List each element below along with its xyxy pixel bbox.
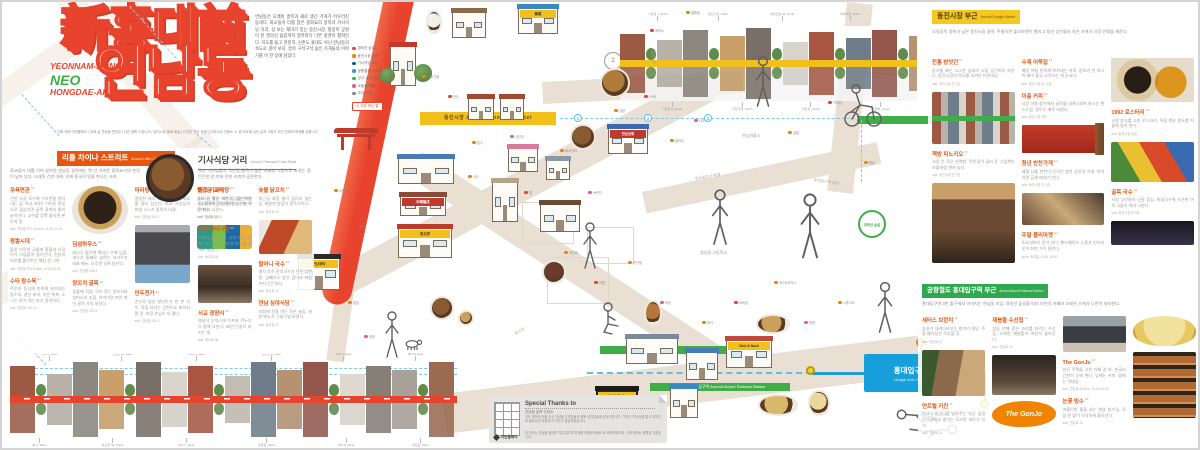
shop-address: add. 연남동 240-12 (10, 305, 65, 310)
map-marker: 펍 (524, 190, 532, 195)
map-marker: 라멘 (594, 280, 605, 285)
map-building: 老北京 (398, 228, 452, 258)
roof (725, 336, 773, 341)
shop-name: 이층 커피G2 (1022, 92, 1105, 100)
shop-entry: 할머니 국수E3멸치 육수 잔치국수가 단돈 삼천 원. 곱빼기도 같은 값이라… (259, 260, 313, 293)
shop-name-text: 눈꽃 빙수 (1063, 399, 1084, 405)
building-photo (783, 67, 808, 85)
window (731, 351, 742, 358)
strip-label-text: 후문길_West (258, 443, 275, 447)
strip-label: 연남장_South (802, 102, 820, 111)
shop-address: add. 연남로 19 (992, 344, 1055, 349)
airport-title: 공항철도 홍대입구역 부근 (927, 287, 996, 294)
yeonnam-map-poster: 경의선숲길공원 Gyeongui Line Forest Park 동진시장 A… (0, 0, 1200, 450)
shop-name: 딤섬하우스B3 (72, 240, 127, 248)
map-building (808, 390, 830, 416)
area-label: 연남파출소 (742, 133, 760, 139)
strip-label-text: 시장길 5_South (662, 107, 682, 111)
shop-description: 여름이면 줄을 서는 옛날 빙수집. 직접 쑨 팥이 넉넉하게 올라간다. (1063, 407, 1126, 419)
marker-dot (348, 301, 352, 305)
grid-ref: F4 (1049, 58, 1052, 62)
grid-ref: K2 (1092, 358, 1096, 362)
legend-item: 소품샵·책방 (352, 84, 430, 89)
label-line (850, 16, 851, 21)
map-marker: LP바 (644, 94, 656, 99)
legend-dot (352, 47, 356, 51)
p-plates-photo (1111, 58, 1194, 102)
strip-label: 우체국앞_North (840, 12, 860, 21)
shop-name: 할머니 국수E3 (259, 260, 313, 268)
shop-description: 손으로 빚은 왕만두가 한 판 가득. 육즙 터지는 군만두도 놓치지 말 것.… (135, 299, 190, 316)
roof (507, 144, 539, 149)
roof (669, 384, 699, 389)
marker-label: 꽃집 (353, 300, 359, 305)
map-marker: 마켓 (804, 320, 815, 325)
shop-entry: 1992 로스터리H2시장 창고를 고친 로스터리. 직접 볶은 원두를 저울에… (1111, 108, 1194, 136)
shop-entry: 주말 플리마켓G4토요일마다 장이 선다. 핸드메이드 소품과 빈티지 옷이 좌… (1022, 231, 1105, 259)
shop-name-text: 이층 커피 (1022, 94, 1043, 100)
shop-description: 제철 나물 반찬이 인기인 청년 상인의 가게. 저녁이면 금세 매대가 빈다. (1022, 169, 1105, 181)
marker-dot (702, 321, 706, 325)
p-market-photo (932, 92, 1015, 144)
roof (397, 154, 455, 159)
marker-label: 피자 (707, 320, 713, 325)
shop-name: 1992 로스터리H2 (1111, 108, 1194, 116)
shop-entry: 만두전가B4손으로 빚은 왕만두가 한 판 가득. 육즙 터지는 군만두도 놓치… (135, 289, 190, 322)
window (403, 168, 417, 174)
shop-name-text: 재봉틀 수선집 (992, 318, 1023, 324)
roof (397, 224, 453, 229)
tree-photo (646, 67, 656, 79)
shop-name: 연남 제비다방D3 (198, 225, 252, 233)
subway-line (812, 372, 864, 375)
shop-name: 서교 경양식D4 (198, 309, 252, 317)
building-photo (392, 370, 417, 396)
subtitle-neo: NEO (50, 72, 124, 88)
door (419, 207, 428, 215)
window (474, 22, 482, 28)
p-shelf-photo (1022, 193, 1105, 225)
shop-entry: 짬뽕시대C3불맛 가득한 국물에 홍합과 오징어가 아낌없이 들어간다. 전날의… (10, 237, 65, 270)
shop-name-text: 딤섬하우스 (72, 242, 97, 248)
marker-dot (828, 101, 832, 105)
marker-dot (686, 11, 690, 15)
roof (607, 124, 649, 129)
marker-label: 브런치 (593, 190, 602, 195)
building-photo (136, 403, 161, 437)
building-photo (188, 366, 213, 396)
shop-entry: 수타 탕수육B2주문과 동시에 반죽해 튀겨내는 탕수육. 겉은 바삭, 속은 … (10, 277, 65, 310)
marker-dot (644, 95, 648, 99)
special-thanks-box: Special Thanks to 연남동 골목 안내소 지도 제작에 도움 주… (489, 395, 667, 443)
shop-name-text: The GonJo (1063, 360, 1091, 366)
legend-item: 주차 가능 (352, 91, 430, 96)
shop-address: add. 연남동 260-1 (135, 214, 190, 219)
strip-label: 후문길_West (258, 438, 275, 447)
building-photo (73, 403, 98, 437)
legend-dot (352, 69, 356, 73)
tree-photo (36, 384, 46, 396)
tree-photo (329, 403, 339, 415)
grid-ref: J3 (949, 402, 952, 406)
marker-label: 바버샵 (739, 300, 748, 305)
shop-entry: 전통 방앗간F2참기름 짜는 고소한 냄새가 시장 입구까지 퍼진다. 동진시장… (932, 58, 1015, 86)
marker-label: 와인바 (569, 250, 578, 255)
window (544, 215, 554, 222)
strip-label: 시장길 5_South (662, 102, 682, 111)
roof (399, 192, 447, 197)
shop-name-text: 수제 어묵집 (1022, 60, 1048, 66)
marker-dot (614, 109, 618, 113)
map-marker: 세탁소 (650, 28, 664, 33)
building-photo (277, 403, 302, 429)
shop-name: 청년 반찬가게G3 (1022, 159, 1105, 167)
grid-ref: E2 (286, 186, 289, 190)
tree-photo (214, 384, 224, 396)
tree-photo (36, 403, 46, 415)
tree-photo (329, 384, 339, 396)
shop-name-text: 골목 국수 (1111, 190, 1132, 196)
strip-label: 201-8_West (338, 438, 354, 447)
shop-entry: 골목 국수H3시장 상인들의 단골 점심. 비빔국수에 뜨끈한 어묵 국물이 따… (1111, 188, 1194, 216)
transport-cafe-title-en: Around Transport Cafe Road (250, 160, 296, 164)
window (688, 400, 695, 407)
legend-dot (352, 84, 356, 88)
map-marker: 소품샵 (334, 188, 348, 193)
shop-name-text: 짬뽕시대 (10, 239, 30, 245)
roof (685, 348, 719, 353)
map-marker: 베이커리 (560, 148, 577, 153)
map-building (492, 182, 518, 222)
map-building (570, 124, 596, 150)
legend-item: 경의선 숲길 (352, 46, 430, 51)
door (556, 171, 560, 179)
shop-name-text: 책방 피노키오 (932, 152, 963, 158)
shop-name: 만두전가B4 (135, 289, 190, 297)
door (647, 353, 657, 363)
window (403, 240, 417, 247)
cyclist-illustration (844, 78, 884, 134)
strip-label-text: 201-8_West (338, 443, 354, 447)
map-building (430, 296, 454, 320)
map-building (540, 204, 580, 232)
shop-entry: 연트럴 키친J3피크닉 바구니를 빌려주는 식당. 숲길 잔디밭에서 즐기는 도… (922, 402, 985, 435)
map-building (508, 148, 538, 172)
door (315, 276, 323, 289)
shop-name-text: 우육면관 (10, 188, 30, 194)
window (433, 240, 447, 247)
map-marker: 책방 (354, 224, 365, 229)
building-photo (366, 366, 391, 396)
tree-photo (418, 384, 428, 396)
shop-address: add. 동진시장 2층 (1022, 114, 1105, 119)
marker-dot (472, 141, 476, 145)
shop-name-text: 연남 제비다방 (198, 227, 229, 233)
strip-labels-bottom-south: 48-3_West동교로 38_West212-7_West후문길_West20… (10, 438, 457, 450)
shop-address: add. 동진시장 안 9호 (1111, 210, 1194, 215)
dog-illustration (402, 338, 422, 350)
shop-name: 세터스 브런치J2 (922, 316, 985, 324)
shop-name: 연남 심야식당E4 (259, 299, 313, 307)
roof (625, 334, 679, 339)
building-photo (47, 374, 72, 396)
tree-photo (709, 67, 719, 79)
roof (491, 178, 519, 183)
window (528, 157, 535, 163)
transport-cafe-intro: 택시 기사님들의 백반집 골목이 젊은 카페와 식당으로 바뀌는 중. 든든한 … (198, 168, 312, 180)
strip-label-text: 진진가게_South (732, 107, 753, 111)
map-building (758, 394, 798, 416)
door (520, 162, 526, 171)
shop-description: 시장 창고를 고친 로스터리. 직접 볶은 원두를 저울에 달아 판다. (1111, 118, 1194, 130)
forest-park-badge: 경의선 숲길 (858, 210, 886, 238)
marker-label: 만두 (453, 94, 459, 99)
marker-label: 커피집 (833, 100, 842, 105)
grid-ref: E3 (286, 260, 289, 264)
building-photo (99, 403, 124, 429)
marker-dot (628, 261, 632, 265)
shop-description: 진한 사골 육수에 수타면을 말아내는 집. 화교 3대가 이어온 손맛으로 점… (10, 196, 65, 225)
strip-label: 진진가게_South (732, 102, 753, 111)
shop-name: 주말 플리마켓G4 (1022, 231, 1105, 239)
marker-dot (354, 225, 358, 229)
grid-ref: G2 (1044, 92, 1048, 96)
marker-label: 소품샵 (339, 188, 348, 193)
street-elevation-bottom-mirror (10, 403, 457, 437)
grid-ref: H2 (1146, 108, 1150, 112)
shop-sign: 老北京 (400, 230, 450, 238)
map-marker: 스튜디오 (838, 300, 855, 305)
shop-entry: 이층 커피G2시장 이층 창가에서 골목을 내려다보며 마시는 핸드드립. 원두… (1022, 92, 1105, 120)
legend-item: 공항철도·지하철 (352, 69, 430, 74)
map-building (670, 388, 698, 418)
marker-label: 공방 (369, 334, 375, 339)
door (510, 111, 514, 119)
marker-label: 빵집 (869, 160, 875, 165)
shop-description: 숲길이 내려다보이는 창가가 명당. 주말 웨이팅은 각오할 것. (922, 326, 985, 338)
shop-description: 삼십 년째 같은 자리를 지키는 수선집. 오래된 재봉틀이 여전히 돌아간다. (992, 326, 1055, 343)
legend-label: 걷고 싶은 거리 (358, 76, 380, 81)
building-photo (720, 67, 745, 91)
tree-photo (418, 403, 428, 415)
marker-dot (774, 281, 778, 285)
shop-address: add. 동교로 17 (259, 322, 313, 327)
map-marker: 사진관 (510, 134, 524, 139)
map-building (686, 352, 718, 380)
marker-label: 살롱 (793, 130, 799, 135)
exit-number-badge: 3 (704, 114, 712, 122)
shop-address: add. 동진시장 안 1호 (932, 81, 1015, 86)
legend-label: 공항철도·지하철 (358, 69, 382, 74)
map-building (546, 160, 570, 180)
shop-address: add. 동교로 51 (198, 214, 252, 219)
p-stall-photo (932, 183, 1015, 263)
dongjin-banner: 동진시장 부근Around Dongjin Market (932, 10, 1020, 24)
grid-ref: D4 (225, 309, 229, 313)
shop-address: add. 연남동 251-2 (135, 318, 190, 323)
poster-intro-text: 연남동은 오래된 골목과 새로 생긴 가게가 어우러진 동네다. 화교들이 터를… (255, 14, 349, 59)
map-building: 雜貨 (518, 8, 558, 34)
shop-description: 퇴근길 포장 줄이 끊이지 않는 집. 매콤한 양념이 중독적이다. (259, 196, 313, 208)
window (562, 168, 568, 173)
map-building (600, 68, 630, 98)
shop-name-text: 연남 심야식당 (259, 301, 290, 307)
legend-item: 걷고 싶은 거리 (352, 76, 430, 81)
marker-dot (670, 139, 674, 143)
map-howto-tag: ※ 지도 보는 법 (352, 102, 383, 111)
marker-dot (588, 191, 592, 195)
marker-dot (334, 189, 338, 193)
door (421, 173, 432, 183)
shop-name: 원조 기사식당D2 (198, 186, 252, 194)
exit-number-badge: 2 (644, 114, 652, 122)
p-bake-photo (1133, 352, 1196, 418)
publisher-logo: 어반플레이 (494, 435, 518, 440)
airport-intro: 홍대입구역 3번 출구에서 이어지는 연남동 초입. 경의선 숲길을 따라 브런… (922, 301, 1192, 307)
marker-label: 마켓 (809, 320, 815, 325)
sitting-guitarist (600, 302, 620, 336)
tree-photo (835, 48, 845, 60)
marker-dot (448, 95, 452, 99)
marker-dot (694, 119, 698, 123)
grid-ref: D3 (230, 226, 234, 230)
shop-description: 자정에 문을 여는 작은 술집. 칠판 메뉴가 그날그날 바뀐다. (259, 309, 313, 321)
door (699, 368, 705, 379)
map-marker: 떡집 (660, 300, 671, 305)
shop-address: add. 동진시장 안 12호 (1022, 81, 1105, 86)
building-photo (225, 376, 250, 396)
grid-ref: A2 (100, 280, 104, 284)
marker-label: LP바 (649, 94, 656, 99)
map-marker: 살롱 (788, 130, 799, 135)
legend-label: 기사식당 거리 (358, 61, 379, 66)
window (707, 363, 715, 370)
marker-dot (660, 301, 664, 305)
building-photo (429, 362, 454, 396)
building-photo (657, 67, 682, 87)
shop-address: add. 동교로 46 (198, 254, 252, 259)
area-label: 경성중·고등학교 (700, 250, 727, 256)
legend-dot (352, 92, 356, 96)
grid-ref: J4 (1025, 316, 1028, 320)
building-photo (809, 32, 834, 60)
exit-number-badge: 1 (574, 114, 582, 122)
shop-name-text: 양꼬치 골목 (72, 281, 98, 287)
subtitle-hongdae: HONGDAE-AP (50, 88, 124, 98)
shop-entry: 딤섬하우스B3대나무 찜기에 쪄내는 수제 딤섬. 새우가 통째로 씹히는 하가… (72, 240, 127, 273)
shop-name-text: 마라탕 (135, 188, 150, 194)
shop-description: 매일 아침 반죽해 튀겨내는 어묵. 장보기 전 하나씩 베어 물고 시작하는 … (1022, 68, 1105, 80)
marker-dot (564, 251, 568, 255)
building-photo (225, 403, 250, 423)
map-marker: 바버샵 (734, 300, 748, 305)
window (485, 107, 491, 112)
strip-label: 190-2_East (336, 352, 351, 361)
marker-label: 라멘 (599, 280, 605, 285)
label-line (271, 356, 272, 361)
tree-photo (898, 48, 908, 60)
building-photo (303, 362, 328, 396)
marker-dot (864, 161, 868, 165)
p-interior-photo (198, 265, 252, 303)
map-legend: 경의선 숲길동진시장 골목기사식당 거리공항철도·지하철걷고 싶은 거리소품샵·… (352, 46, 430, 99)
p-sew-photo (992, 355, 1055, 395)
label-line (196, 356, 197, 361)
roof (499, 94, 525, 99)
marker-label: 게스트하우스 (779, 280, 797, 285)
building-photo (683, 67, 708, 97)
shop-entry: 수제 어묵집F4매일 아침 반죽해 튀겨내는 어묵. 장보기 전 하나씩 베어 … (1022, 58, 1105, 86)
map-marker: 타코 (694, 118, 705, 123)
transport-cafe-title: 기사식당 거리 (198, 155, 247, 165)
shop-name: 우육면관C2 (10, 186, 65, 194)
shop-name-text: 만두전가 (135, 291, 155, 297)
legend-dot (352, 54, 356, 58)
shop-entry: 연남 제비다방D3기사식당 자리를 고쳐 만든 카페. 낡은 간판과 타일 바닥… (198, 225, 252, 258)
strip-label-text: 48-3_West (32, 443, 46, 447)
grid-ref: C3 (31, 237, 35, 241)
person-illustration (752, 54, 774, 112)
window (631, 348, 644, 354)
label-line (782, 16, 783, 21)
p-night-photo (1111, 221, 1194, 245)
building-photo (162, 403, 187, 427)
shop-description: 기사식당 자리를 고쳐 만든 카페. 낡은 간판과 타일 바닥을 그대로 살렸다… (198, 235, 252, 252)
map-building: 中華飯店 (400, 196, 446, 216)
window (566, 215, 576, 222)
legend-label: 주차 가능 (358, 91, 372, 96)
tree-photo (898, 67, 908, 79)
marker-label: 타코 (699, 118, 705, 123)
legend-label: 경의선 숲길 (358, 46, 376, 51)
logo-mark (493, 434, 500, 441)
shop-name-text: 주말 플리마켓 (1022, 233, 1053, 239)
shop-description: 시장 안 작은 헌책방. 주인장이 골라 둔 그림책이 보물처럼 쌓여 있다. (932, 159, 1015, 171)
shop-description: 옛날식 돈까스에 수프와 깍두기가 함께 나온다. 30년 단골이 지키는 맛. (198, 318, 252, 335)
building-photo (720, 36, 745, 60)
shop-name-text: 수타 탕수육 (10, 279, 36, 285)
building-photo (783, 42, 808, 60)
map-building (468, 98, 494, 120)
building-photo (73, 362, 98, 396)
building-photo (99, 370, 124, 396)
strip-label: 시장길 4_North (648, 12, 668, 21)
map-marker: 공방 (364, 334, 375, 339)
marker-dot (468, 175, 472, 179)
subtitle-yeonnam: YEONNAM-DONG, (50, 62, 124, 72)
dongjin-title: 동진시장 부근 (937, 13, 978, 20)
door (624, 143, 632, 153)
map-marker: 문구점 (628, 260, 642, 265)
shop-name: 책방 피노키오F3 (932, 150, 1015, 158)
title-subtitle: YEONNAM-DONG, NEO HONGDAE-AP (50, 62, 124, 98)
marker-dot (734, 301, 738, 305)
map-building (458, 310, 474, 326)
map-marker: 피자 (702, 320, 713, 325)
marker-dot (650, 29, 654, 33)
door (420, 245, 430, 257)
roof (539, 200, 581, 205)
shop-name-text: 전통 방앗간 (932, 60, 958, 66)
strip-label-text: 연남장_South (802, 107, 820, 111)
marker-dot (364, 335, 368, 339)
map-building (756, 314, 790, 334)
dongjin-title-en: Around Dongjin Market (981, 15, 1016, 19)
gate-post (341, 136, 344, 150)
window (549, 168, 555, 173)
little-china-intro: 화교들이 대를 이어 살아온 연남동 골목에는 백 년 가까운 중화요리의 손맛… (10, 168, 140, 180)
p-bingsu-photo (1133, 316, 1196, 346)
